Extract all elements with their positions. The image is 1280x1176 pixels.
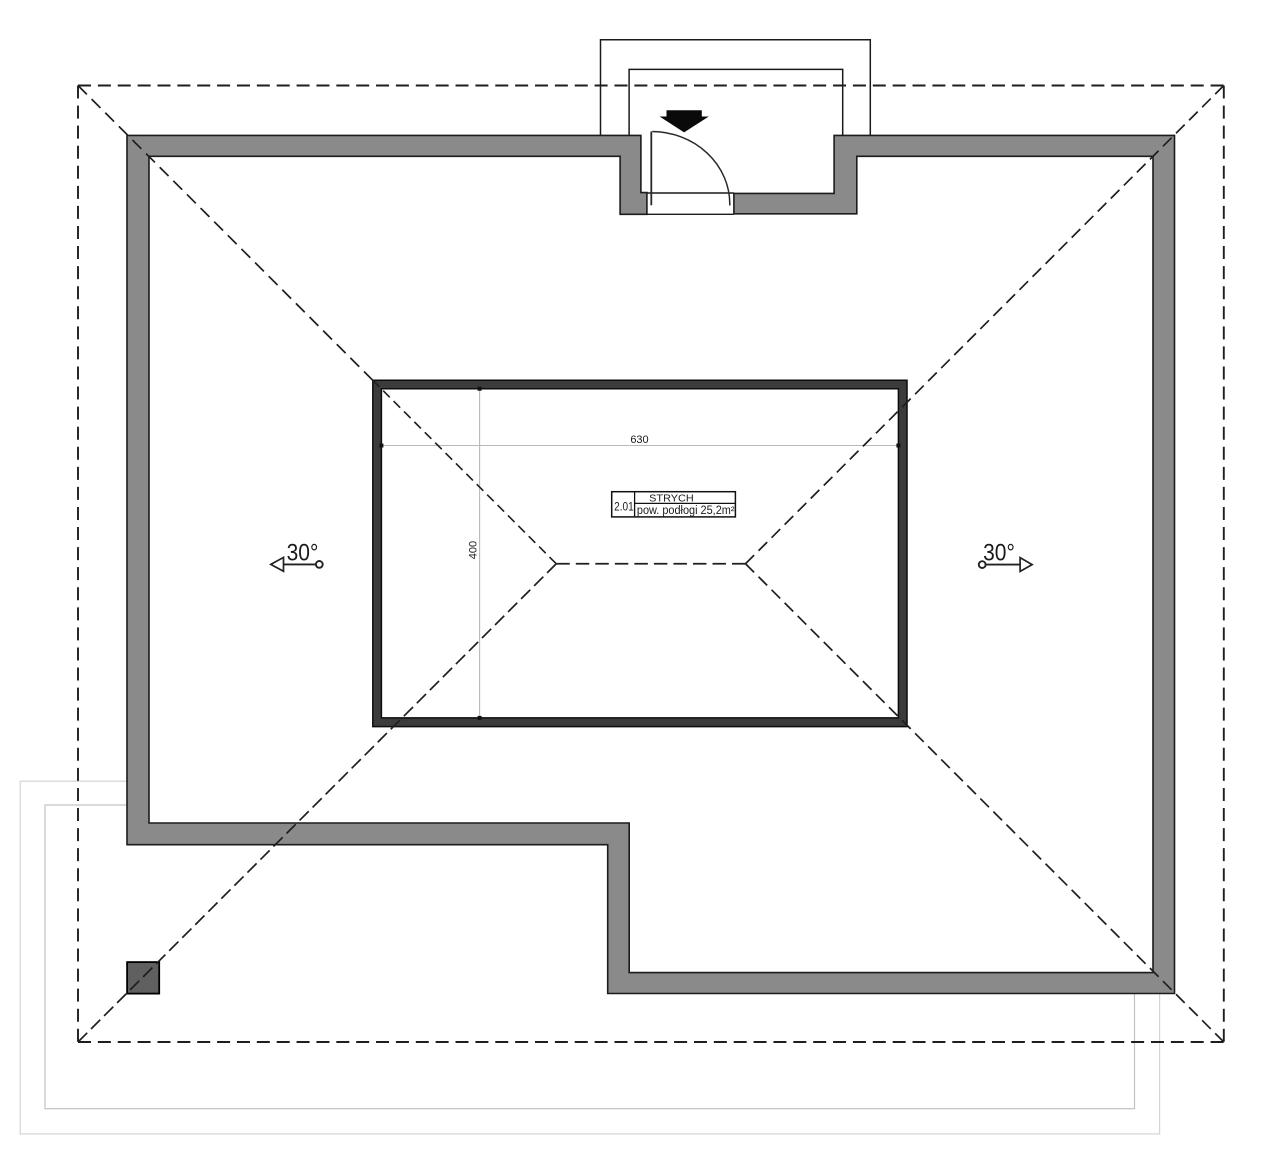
svg-text:2.01: 2.01	[614, 500, 634, 514]
svg-text:STRYCH: STRYCH	[649, 494, 694, 505]
svg-text:400: 400	[468, 541, 480, 559]
svg-text:pow. podłogi 25,2m²: pow. podłogi 25,2m²	[637, 505, 735, 517]
svg-text:630: 630	[630, 434, 648, 446]
svg-text:30°: 30°	[287, 540, 319, 567]
svg-text:30°: 30°	[983, 540, 1015, 567]
